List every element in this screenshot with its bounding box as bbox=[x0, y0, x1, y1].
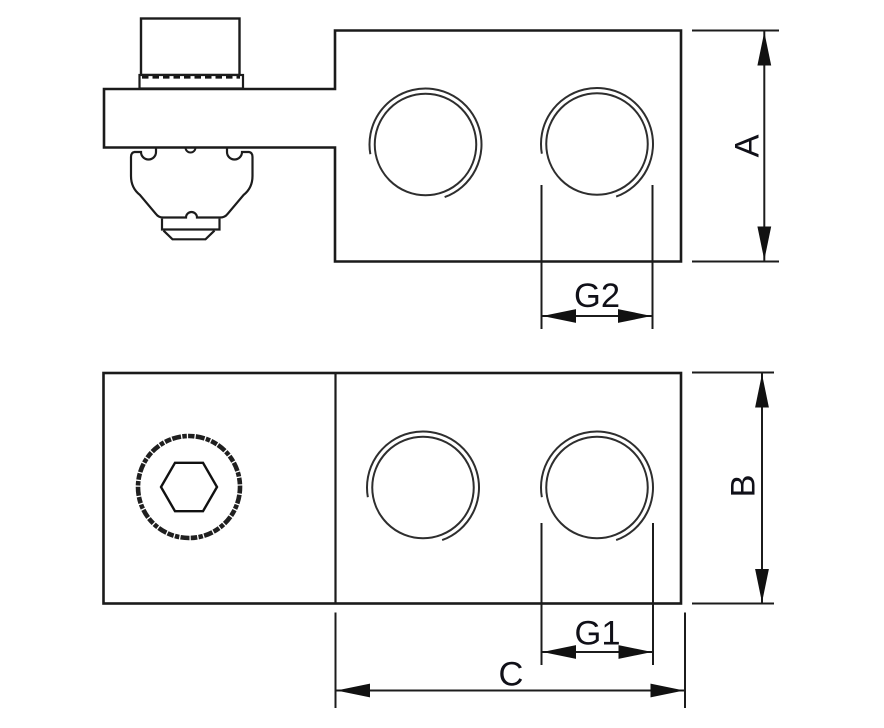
svg-text:G1: G1 bbox=[574, 615, 620, 653]
svg-text:A: A bbox=[729, 134, 767, 157]
svg-text:G2: G2 bbox=[574, 277, 620, 315]
svg-text:B: B bbox=[725, 474, 763, 497]
svg-text:C: C bbox=[499, 656, 524, 694]
